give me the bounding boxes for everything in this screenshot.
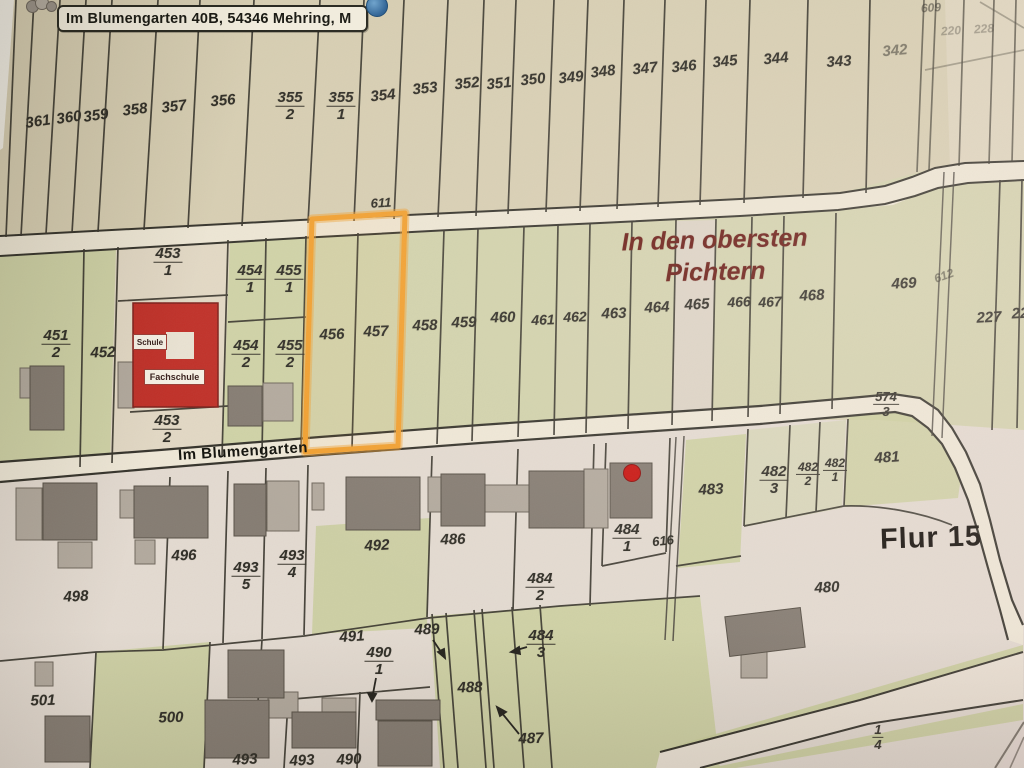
school-label: Schule [133, 334, 167, 350]
parcel-label-455-1: 4551 [274, 263, 303, 296]
parcel-label-358: 358 [122, 101, 149, 120]
parcel-label-459: 459 [451, 315, 477, 332]
parcel-label-484-1: 4841 [612, 522, 641, 555]
parcel-label-493: 493 [289, 752, 315, 768]
parcel-label-463: 463 [601, 306, 627, 323]
parcel-label-228: 228 [974, 22, 995, 36]
parcel-label-349: 349 [558, 69, 585, 87]
parcel-label-616: 616 [651, 533, 674, 549]
parcel-label-468: 468 [799, 287, 825, 304]
parcel-label-354: 354 [370, 87, 397, 105]
parcel-label-357: 357 [161, 98, 188, 117]
parcel-label-350: 350 [520, 71, 547, 89]
parcel-label-460: 460 [490, 310, 516, 327]
parcel-label-501: 501 [30, 693, 56, 710]
parcel-label-345: 345 [712, 53, 739, 71]
parcel-label-469: 469 [891, 275, 917, 292]
parcel-label-457: 457 [363, 324, 389, 341]
parcel-label-1-4: 14 [872, 723, 883, 751]
parcel-label-488: 488 [457, 680, 483, 697]
parcel-label-492: 492 [364, 537, 390, 554]
parcel-label-609: 609 [921, 1, 942, 15]
parcel-label-480: 480 [814, 579, 840, 596]
region-title-line1: In den obersten [621, 224, 808, 257]
parcel-label-359: 359 [83, 106, 110, 125]
parcel-label-464: 464 [644, 299, 670, 316]
poi-cluster-icon [24, 0, 64, 14]
parcel-label-355-1: 3551 [326, 90, 355, 123]
flur-label: Flur 15 [879, 520, 982, 557]
parcel-label-454-1: 4541 [235, 263, 264, 296]
parcel-label-22: 22 [1011, 306, 1024, 323]
address-bar[interactable]: Im Blumengarten 40B, 54346 Mehring, M [57, 5, 368, 32]
parcel-label-465: 465 [684, 296, 710, 313]
parcel-label-466: 466 [727, 294, 751, 310]
parcel-label-361: 361 [25, 112, 52, 131]
parcel-label-493: 493 [232, 751, 258, 768]
parcel-label-493-5: 4935 [231, 560, 260, 593]
parcel-label-454-2: 4542 [231, 338, 260, 371]
parcel-label-484-3: 4843 [526, 628, 555, 661]
parcel-label-482-2: 4822 [796, 461, 820, 487]
parcel-label-455-2: 4552 [275, 338, 304, 371]
parcel-label-458: 458 [412, 318, 438, 335]
parcel-label-489: 489 [414, 622, 440, 639]
cadastral-map[interactable]: 3613603593583573563552355135435335235135… [0, 0, 1024, 768]
parcel-label-467: 467 [758, 294, 782, 310]
parcel-label-491: 491 [339, 628, 365, 645]
parcel-label-456: 456 [319, 327, 345, 344]
parcel-label-493-4: 4934 [277, 548, 306, 581]
parcel-label-482-3: 4823 [759, 464, 788, 497]
parcel-label-451-2: 4512 [41, 328, 70, 361]
parcel-label-487: 487 [518, 731, 544, 748]
fachschule-label: Fachschule [144, 369, 205, 385]
parcel-label-453-2: 4532 [152, 413, 181, 446]
parcel-label-490-1: 4901 [364, 645, 393, 678]
parcel-label-452: 452 [90, 345, 116, 362]
parcel-label-360: 360 [56, 108, 83, 127]
region-title: In den obersten Pichtern [599, 223, 831, 290]
parcel-label-481: 481 [874, 449, 900, 466]
parcel-label-220: 220 [941, 24, 962, 38]
parcel-label-483: 483 [698, 481, 724, 498]
parcel-label-498: 498 [63, 588, 89, 605]
parcel-label-346: 346 [671, 58, 698, 76]
parcel-label-353: 353 [412, 80, 439, 98]
parcel-label-484-2: 4842 [525, 571, 554, 604]
parcel-label-461: 461 [531, 312, 555, 327]
parcel-label-348: 348 [590, 63, 617, 82]
parcel-label-227: 227 [976, 309, 1002, 326]
region-title-line2: Pichtern [600, 255, 831, 290]
parcel-label-611: 611 [370, 196, 391, 211]
parcel-label-343: 343 [826, 53, 852, 70]
parcel-label-355-2: 3552 [275, 90, 304, 123]
parcel-label-490: 490 [336, 751, 362, 768]
parcel-label-344: 344 [763, 50, 790, 68]
parcel-label-351: 351 [486, 75, 513, 93]
parcel-label-453-1: 4531 [153, 246, 182, 279]
parcel-label-496: 496 [171, 548, 197, 565]
parcel-label-342: 342 [882, 42, 908, 60]
parcel-label-462: 462 [563, 309, 587, 324]
parcel-label-574-3: 5743 [873, 390, 899, 418]
address-label: Im Blumengarten 40B, 54346 Mehring, M [66, 11, 351, 27]
parcel-label-482-1: 4821 [823, 457, 847, 483]
parcel-label-500: 500 [158, 710, 184, 727]
parcel-label-347: 347 [632, 60, 659, 78]
parcel-label-486: 486 [440, 532, 466, 549]
parcel-label-352: 352 [454, 75, 481, 93]
parcel-label-356: 356 [210, 92, 236, 110]
